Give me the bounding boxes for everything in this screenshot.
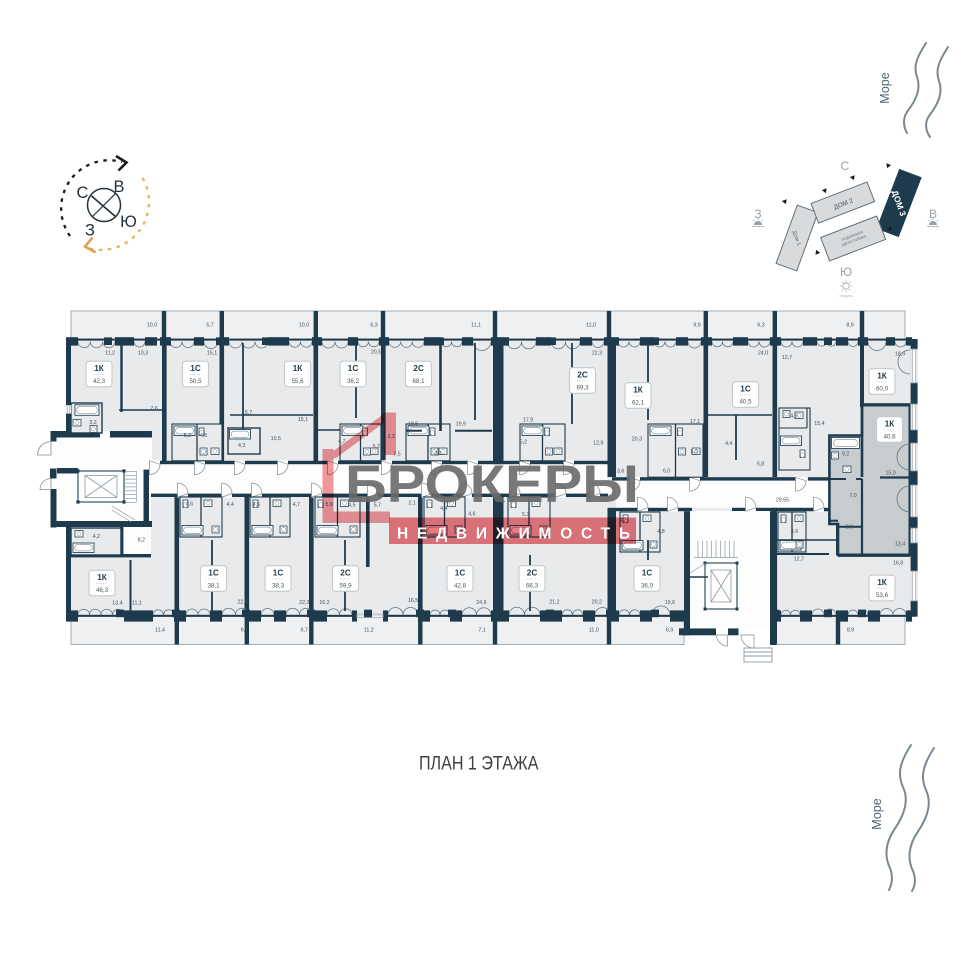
svg-text:4,4: 4,4 [725, 441, 732, 447]
svg-text:62,1: 62,1 [632, 399, 645, 406]
svg-text:1С: 1С [273, 568, 284, 577]
svg-text:17,1: 17,1 [690, 419, 700, 425]
svg-text:5,2: 5,2 [520, 440, 527, 446]
svg-text:16,5: 16,5 [408, 598, 418, 604]
svg-text:15,1: 15,1 [298, 417, 308, 423]
svg-text:6,3: 6,3 [370, 323, 377, 329]
svg-text:10,3: 10,3 [138, 351, 148, 357]
svg-text:20,3: 20,3 [632, 437, 642, 443]
svg-text:З: З [85, 222, 95, 240]
svg-text:1С: 1С [455, 568, 466, 577]
svg-text:1С: 1С [190, 364, 201, 373]
svg-text:4,7: 4,7 [293, 502, 300, 508]
svg-text:19,6: 19,6 [665, 600, 675, 606]
svg-text:5,8: 5,8 [757, 462, 764, 468]
svg-text:2С: 2С [340, 568, 351, 577]
svg-text:16,2: 16,2 [319, 600, 329, 606]
svg-text:21,2: 21,2 [549, 600, 559, 606]
svg-text:11,2: 11,2 [364, 627, 374, 633]
svg-text:5,2: 5,2 [691, 450, 698, 456]
svg-text:1К: 1К [97, 573, 108, 582]
svg-text:С: С [77, 184, 89, 202]
svg-text:6,0: 6,0 [663, 469, 670, 475]
svg-text:4,8: 4,8 [657, 529, 664, 535]
svg-text:11,4: 11,4 [155, 627, 165, 633]
svg-text:7,0: 7,0 [849, 493, 856, 499]
svg-text:60,0: 60,0 [876, 385, 889, 392]
svg-text:12,7: 12,7 [782, 355, 792, 361]
svg-text:4,4: 4,4 [227, 502, 234, 508]
svg-text:29,55: 29,55 [776, 498, 789, 504]
svg-text:2С: 2С [413, 364, 424, 373]
svg-text:6,9: 6,9 [666, 627, 673, 633]
svg-text:53,6: 53,6 [876, 592, 889, 599]
svg-text:ПЛАН 1 ЭТАЖА: ПЛАН 1 ЭТАЖА [419, 754, 539, 775]
svg-text:22,3: 22,3 [299, 600, 309, 606]
svg-text:59,9: 59,9 [339, 582, 352, 589]
svg-text:12,9: 12,9 [593, 441, 603, 447]
svg-text:38,3: 38,3 [272, 582, 285, 589]
svg-text:2С: 2С [527, 568, 538, 577]
svg-text:10,0: 10,0 [147, 323, 157, 329]
svg-text:11,1: 11,1 [471, 323, 481, 329]
svg-text:15,7: 15,7 [242, 410, 252, 416]
svg-text:4,6: 4,6 [791, 529, 798, 535]
svg-text:9,2: 9,2 [842, 452, 849, 458]
svg-text:46,3: 46,3 [96, 587, 109, 594]
svg-text:5,7: 5,7 [206, 323, 213, 329]
svg-text:20,5: 20,5 [371, 350, 381, 356]
svg-text:Ю: Ю [120, 213, 137, 231]
svg-text:1К: 1К [94, 364, 105, 373]
svg-text:11,1: 11,1 [132, 601, 142, 607]
svg-text:Море: Море [878, 72, 892, 103]
svg-text:11,0: 11,0 [589, 627, 599, 633]
svg-text:В: В [113, 178, 124, 196]
svg-text:4,5: 4,5 [200, 433, 207, 439]
svg-text:1К: 1К [885, 419, 896, 428]
svg-text:15,4: 15,4 [814, 421, 824, 427]
svg-text:18,9: 18,9 [895, 352, 905, 358]
svg-text:40,6: 40,6 [883, 433, 896, 440]
svg-text:4,3: 4,3 [238, 443, 245, 449]
svg-text:66,3: 66,3 [526, 582, 539, 589]
svg-text:Ю: Ю [840, 265, 852, 279]
svg-text:8,9: 8,9 [847, 627, 854, 633]
svg-text:полдень: полдень [839, 294, 853, 298]
svg-text:4,2: 4,2 [93, 534, 100, 540]
svg-text:36,2: 36,2 [347, 378, 360, 385]
svg-text:42,8: 42,8 [454, 582, 467, 589]
svg-text:15,0: 15,0 [885, 471, 895, 477]
svg-text:11,0: 11,0 [586, 323, 596, 329]
svg-text:55,6: 55,6 [291, 378, 304, 385]
svg-text:БРОКЕРЫ: БРОКЕРЫ [345, 455, 639, 514]
svg-text:24,6: 24,6 [476, 600, 486, 606]
svg-text:16,8: 16,8 [893, 561, 903, 567]
svg-text:5,2: 5,2 [184, 433, 191, 439]
svg-text:5,2: 5,2 [373, 444, 380, 450]
svg-text:6,7: 6,7 [241, 627, 248, 633]
svg-text:1С: 1С [740, 384, 751, 393]
svg-text:22,4: 22,4 [237, 600, 247, 606]
svg-text:10,5: 10,5 [271, 436, 281, 442]
svg-text:36,0: 36,0 [641, 582, 654, 589]
svg-text:40,5: 40,5 [739, 398, 752, 405]
svg-text:18,5: 18,5 [408, 422, 418, 428]
svg-text:13,4: 13,4 [112, 601, 122, 607]
svg-text:69,3: 69,3 [576, 384, 589, 391]
svg-text:19,9: 19,9 [456, 422, 466, 428]
svg-text:6,3: 6,3 [757, 323, 764, 329]
svg-text:11,2: 11,2 [105, 351, 115, 357]
svg-text:6,7: 6,7 [301, 627, 308, 633]
svg-text:15,1: 15,1 [207, 351, 217, 357]
svg-text:42,3: 42,3 [93, 378, 106, 385]
svg-text:8,9: 8,9 [846, 323, 853, 329]
svg-text:Море: Море [870, 798, 884, 829]
svg-text:1К: 1К [877, 578, 888, 587]
svg-text:1С: 1С [348, 364, 359, 373]
svg-text:13,4: 13,4 [895, 542, 905, 548]
svg-text:9,9: 9,9 [693, 323, 700, 329]
svg-text:17,9: 17,9 [523, 418, 533, 424]
svg-text:1К: 1К [633, 385, 644, 394]
svg-text:4,6: 4,6 [253, 502, 260, 508]
svg-text:38,1: 38,1 [207, 582, 220, 589]
svg-text:С: С [841, 159, 850, 173]
svg-text:24,0: 24,0 [758, 351, 768, 357]
svg-text:1С: 1С [208, 568, 219, 577]
svg-text:3,2: 3,2 [89, 420, 96, 426]
svg-text:68,1: 68,1 [412, 378, 425, 385]
svg-text:1К: 1К [293, 364, 304, 373]
svg-text:8,2: 8,2 [138, 538, 145, 544]
svg-text:1К: 1К [877, 371, 888, 380]
svg-text:4,6: 4,6 [186, 502, 193, 508]
svg-text:8,6: 8,6 [846, 525, 853, 531]
svg-text:22,3: 22,3 [592, 351, 602, 357]
svg-text:1С: 1С [642, 568, 653, 577]
svg-text:20,2: 20,2 [592, 600, 602, 606]
svg-text:2С: 2С [577, 370, 588, 379]
svg-text:7,6: 7,6 [150, 406, 157, 412]
svg-text:4,9: 4,9 [790, 414, 797, 420]
svg-text:50,5: 50,5 [189, 378, 202, 385]
svg-text:12,7: 12,7 [794, 557, 804, 563]
svg-text:10,0: 10,0 [299, 323, 309, 329]
svg-text:7,1: 7,1 [478, 627, 485, 633]
